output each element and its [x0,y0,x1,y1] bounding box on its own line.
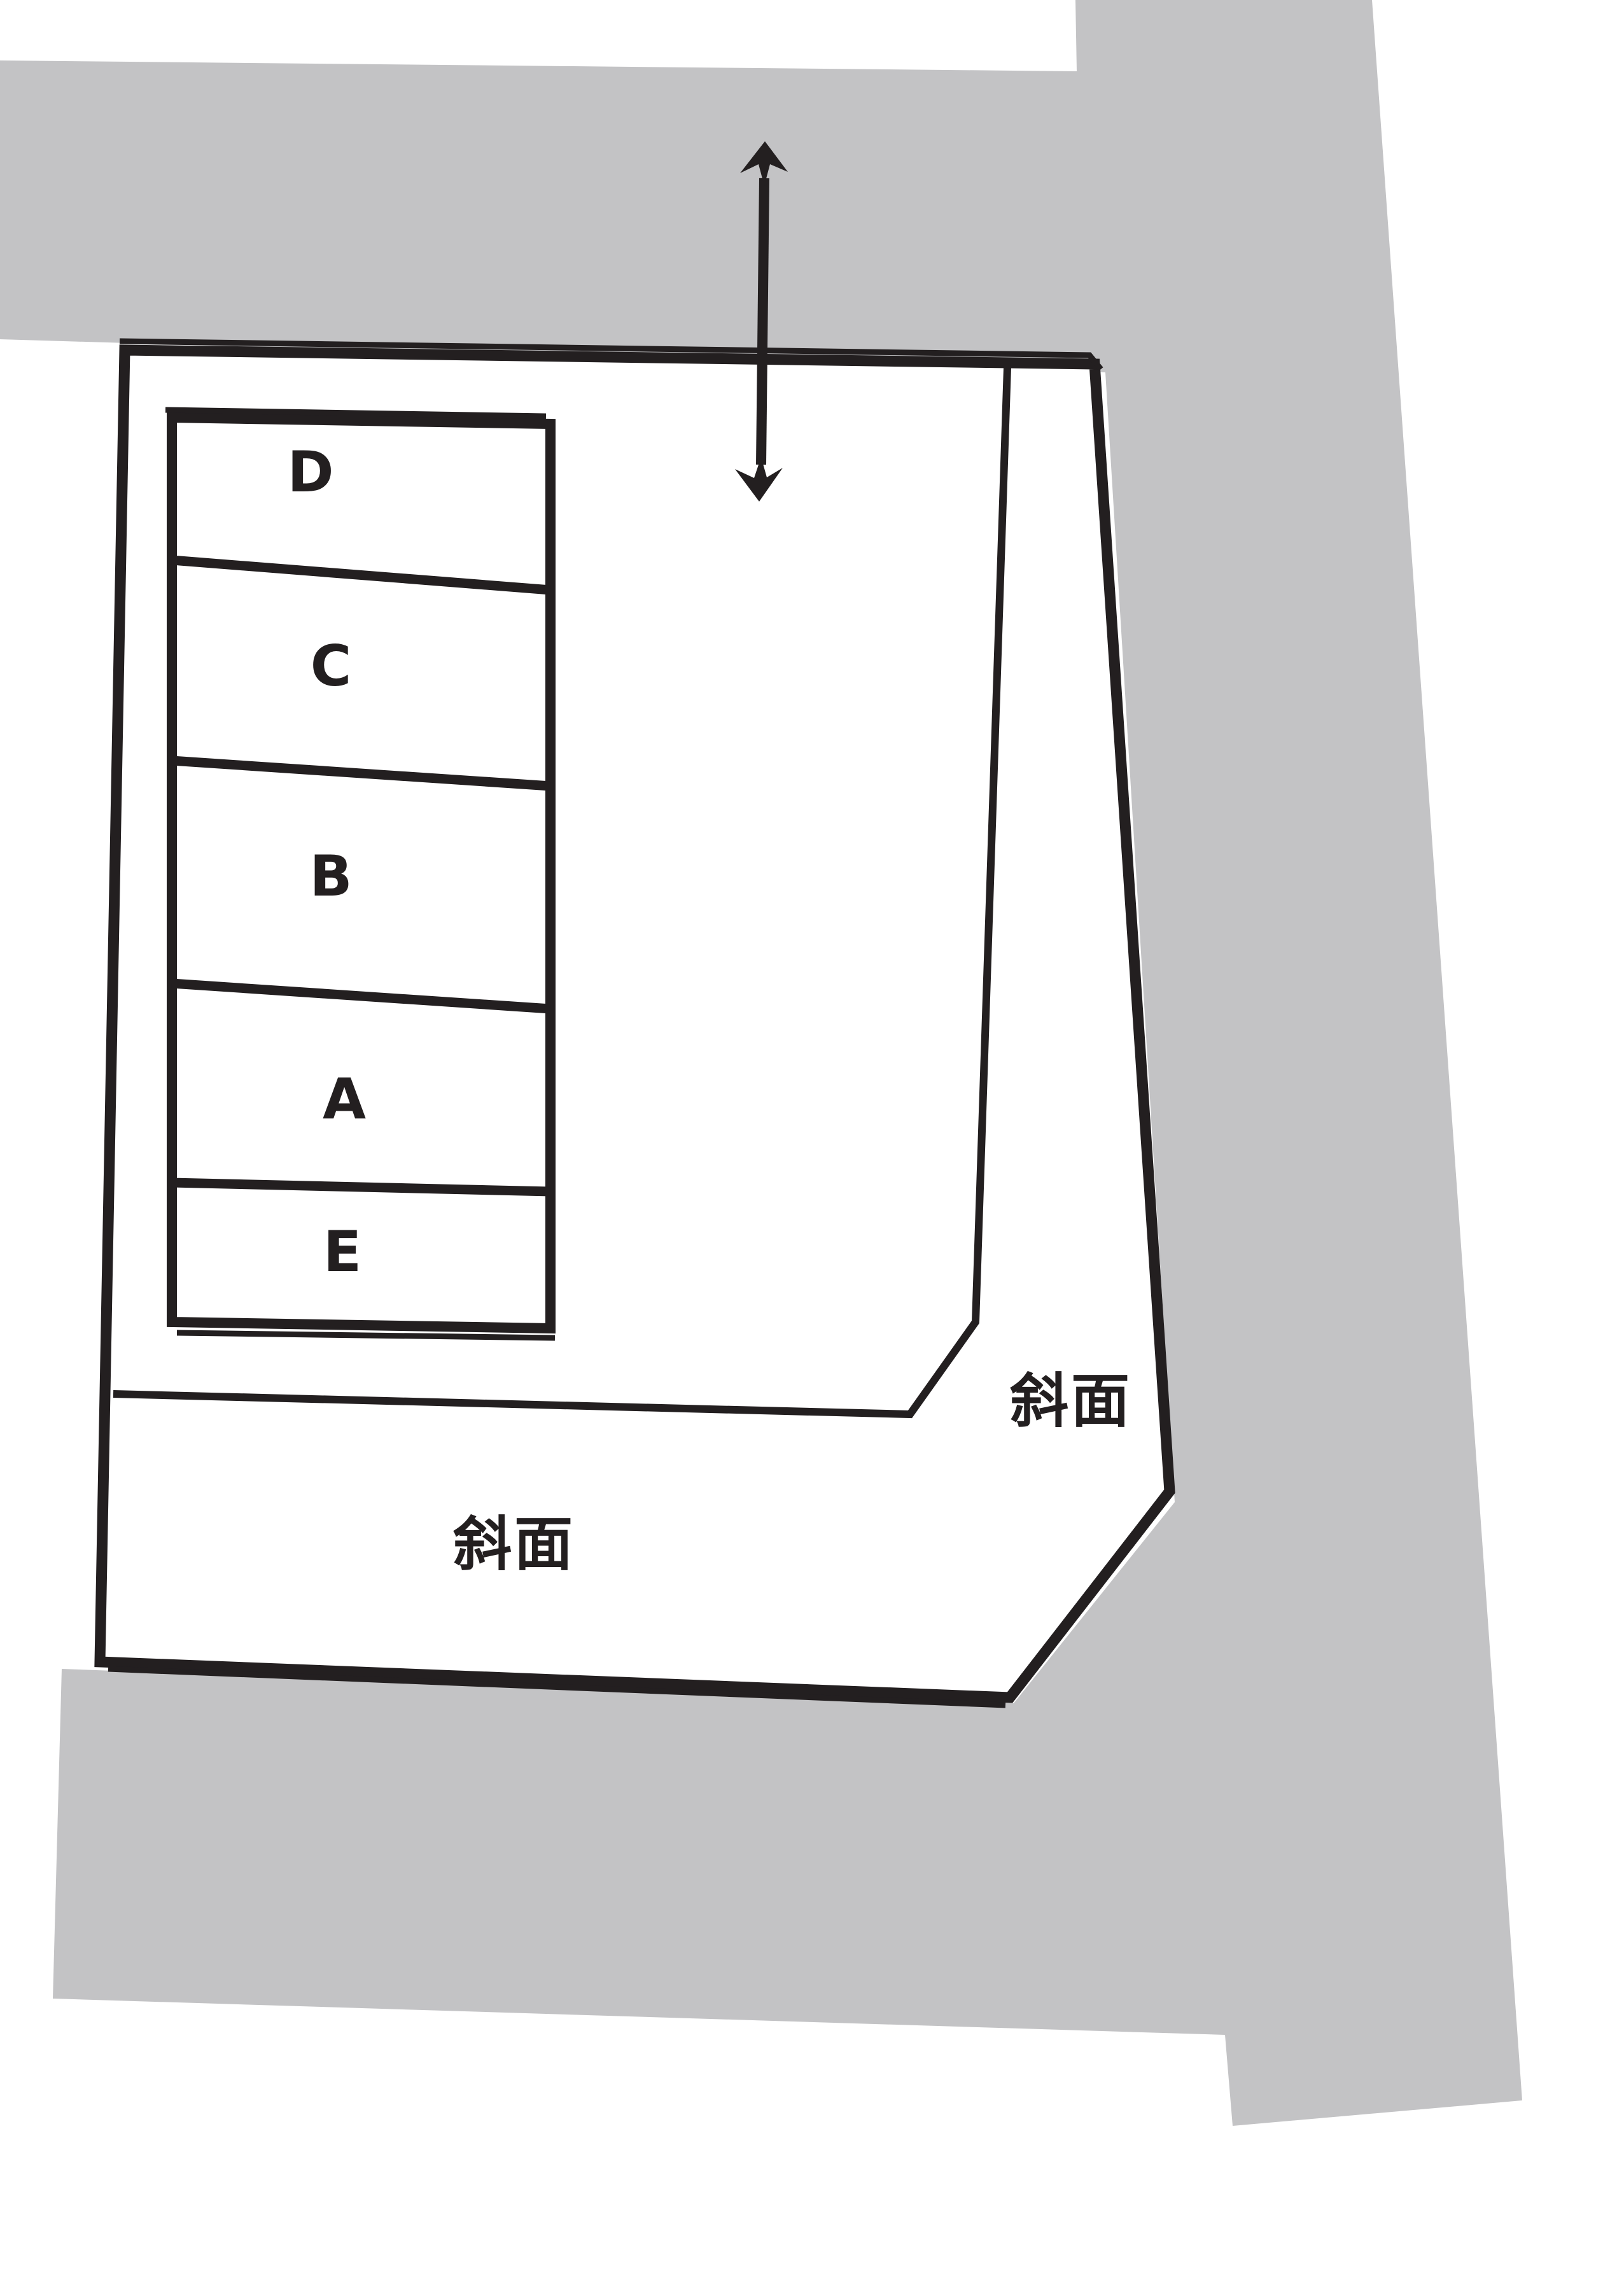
parking-row-label-e: E [323,1219,361,1284]
parking-block: D C B A E [165,410,555,1338]
slope-label-bottom: 斜面 [453,1510,575,1578]
site-plan-page: D C B A E 斜面 斜面 [0,0,1624,2278]
parking-row-label-c: C [311,633,352,699]
arrow-shaft [761,178,764,465]
slope-label-right: 斜面 [1010,1367,1132,1435]
site-plan-diagram: D C B A E 斜面 斜面 [0,0,1624,2278]
parking-row-label-a: A [323,1066,366,1132]
parking-row-label-b: B [309,843,352,909]
parking-row-label-d: D [287,439,333,505]
